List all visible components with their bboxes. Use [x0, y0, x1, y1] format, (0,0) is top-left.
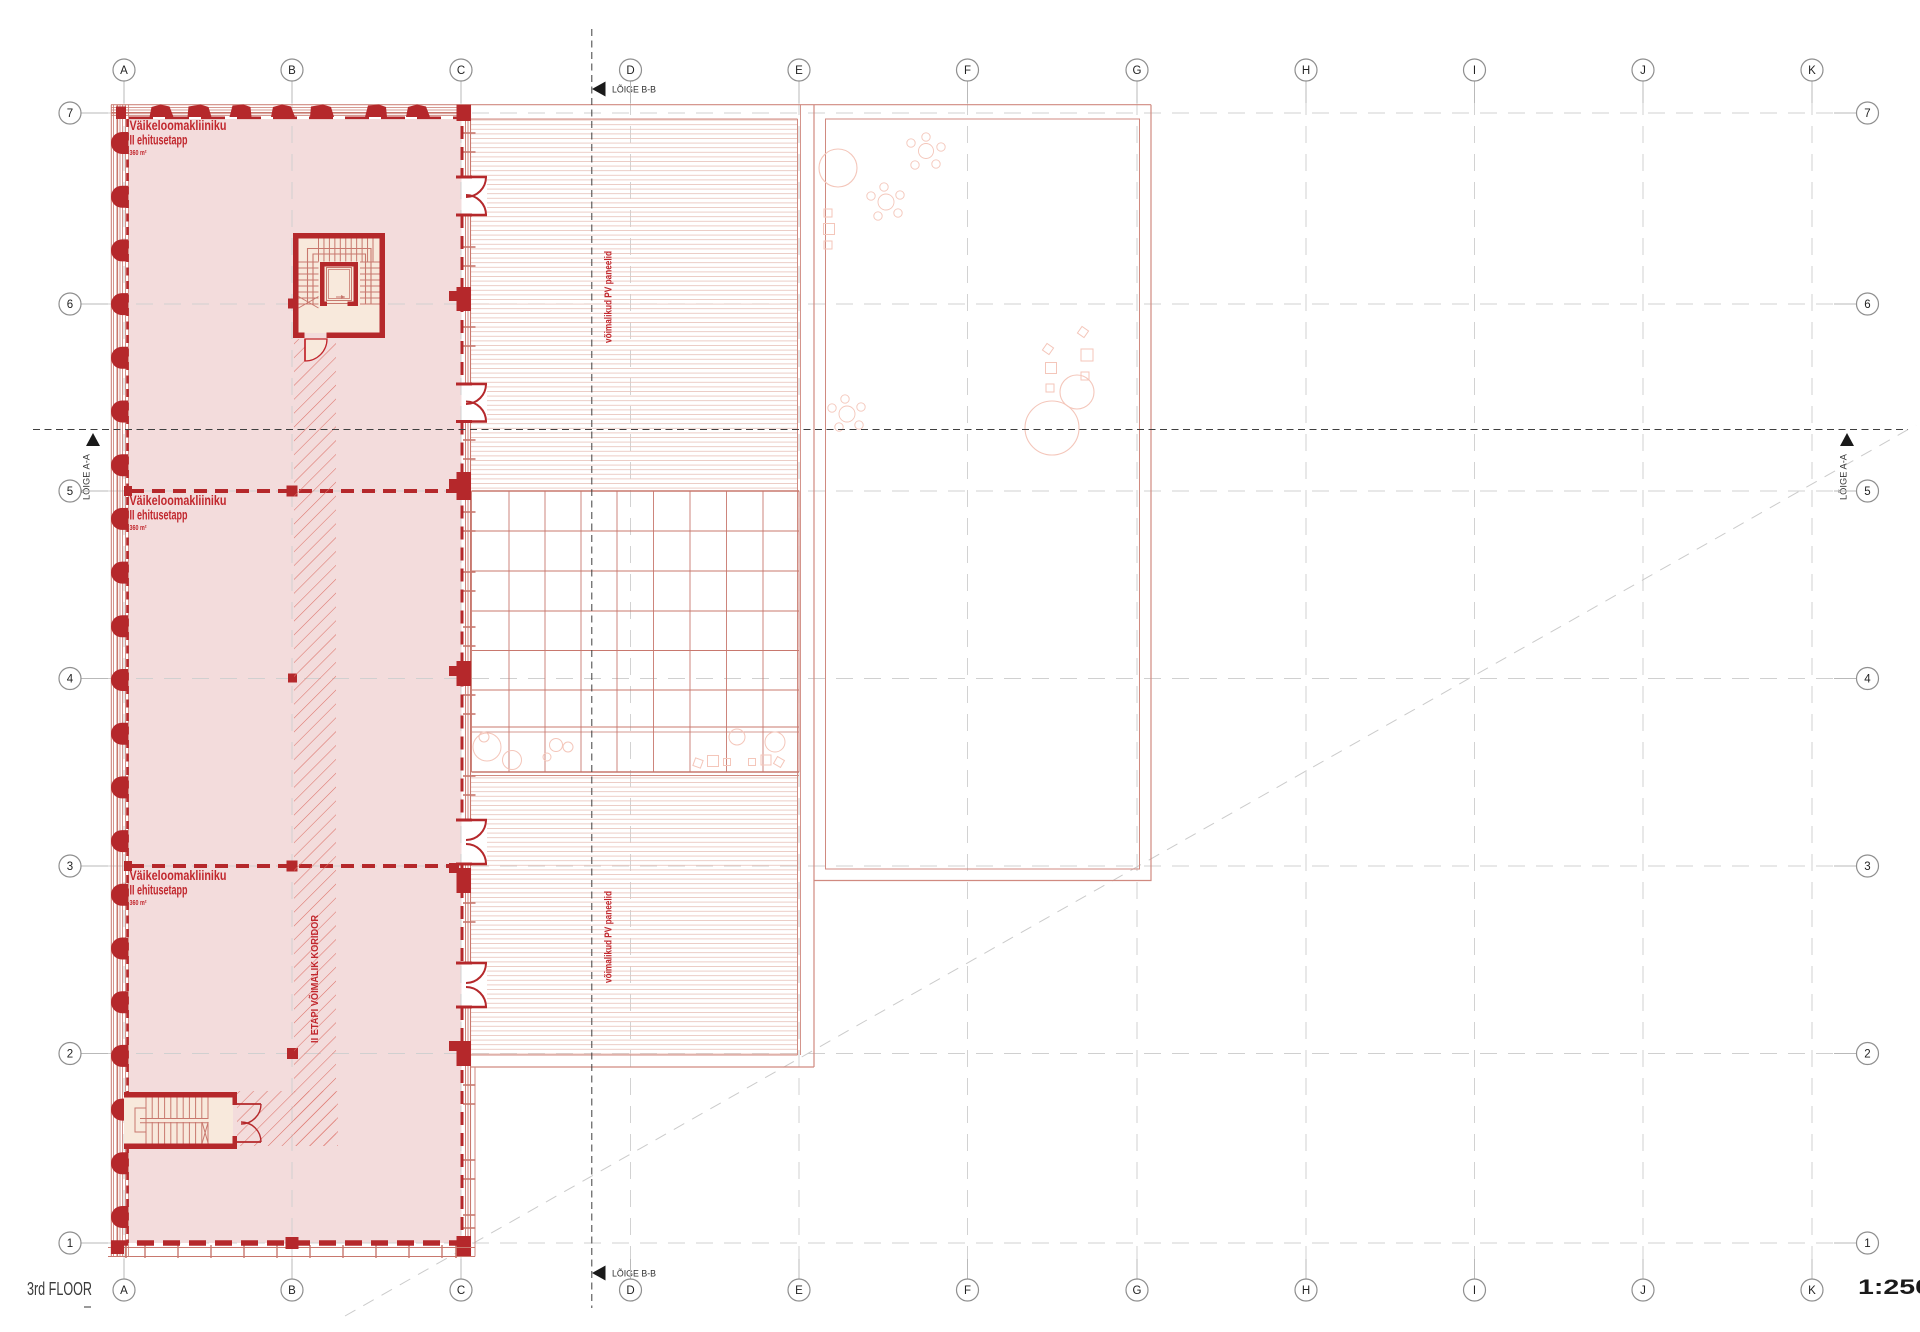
svg-text:A: A [120, 1285, 128, 1297]
svg-text:võimalikud PV paneelid: võimalikud PV paneelid [604, 251, 615, 343]
svg-text:7: 7 [1864, 108, 1870, 120]
svg-text:1:250: 1:250 [1858, 1276, 1920, 1299]
svg-text:3: 3 [67, 861, 73, 873]
svg-text:H: H [1302, 1285, 1310, 1297]
svg-text:E: E [795, 65, 803, 77]
svg-text:LÕIGE B-B: LÕIGE B-B [612, 85, 656, 96]
svg-text:H: H [1302, 65, 1310, 77]
svg-text:J: J [1640, 65, 1646, 77]
svg-text:5: 5 [67, 486, 73, 498]
svg-text:E: E [795, 1285, 803, 1297]
svg-text:5: 5 [1864, 486, 1870, 498]
svg-text:1: 1 [67, 1238, 73, 1250]
svg-text:II ehitusetapp: II ehitusetapp [130, 508, 188, 523]
svg-text:LÕIGE B-B: LÕIGE B-B [612, 1269, 656, 1280]
svg-text:G: G [1133, 65, 1142, 77]
svg-text:C: C [457, 1285, 465, 1297]
svg-text:6: 6 [1864, 299, 1870, 311]
svg-text:II ehitusetapp: II ehitusetapp [130, 132, 188, 147]
svg-text:LÕIGE A-A: LÕIGE A-A [82, 453, 93, 500]
svg-text:I: I [1473, 65, 1476, 77]
svg-text:K: K [1808, 65, 1816, 77]
svg-text:2: 2 [1864, 1049, 1870, 1061]
svg-text:I: I [1473, 1285, 1476, 1297]
svg-text:B: B [288, 65, 296, 77]
svg-text:6: 6 [67, 299, 73, 311]
svg-text:360 m²: 360 m² [130, 150, 148, 157]
svg-text:Väikeloomakliiniku: Väikeloomakliiniku [130, 868, 227, 883]
svg-text:3: 3 [1864, 861, 1870, 873]
svg-text:LÕIGE A-A: LÕIGE A-A [1839, 453, 1850, 500]
svg-text:3rd FLOOR: 3rd FLOOR [27, 1278, 92, 1299]
svg-text:K: K [1808, 1285, 1816, 1297]
svg-text:D: D [626, 65, 634, 77]
svg-text:II ehitusetapp: II ehitusetapp [130, 883, 188, 898]
svg-text:A: A [120, 65, 128, 77]
svg-text:G: G [1133, 1285, 1142, 1297]
svg-text:7: 7 [67, 108, 73, 120]
svg-text:B: B [288, 1285, 296, 1297]
svg-text:D: D [626, 1285, 634, 1297]
svg-text:2: 2 [67, 1049, 73, 1061]
svg-text:C: C [457, 65, 465, 77]
svg-text:1: 1 [1864, 1238, 1870, 1250]
svg-text:Väikeloomakliiniku: Väikeloomakliiniku [130, 493, 227, 508]
svg-text:360 m²: 360 m² [130, 900, 148, 907]
svg-text:J: J [1640, 1285, 1646, 1297]
svg-text:F: F [964, 65, 971, 77]
svg-text:II ETAPI VÕIMALIK KORIDOR: II ETAPI VÕIMALIK KORIDOR [308, 914, 321, 1043]
svg-text:võimalikud PV paneelid: võimalikud PV paneelid [604, 891, 615, 983]
svg-text:4: 4 [1864, 674, 1871, 686]
svg-text:360 m²: 360 m² [130, 525, 148, 532]
svg-text:4: 4 [67, 674, 74, 686]
svg-text:Väikeloomakliiniku: Väikeloomakliiniku [130, 118, 227, 133]
svg-text:F: F [964, 1285, 971, 1297]
